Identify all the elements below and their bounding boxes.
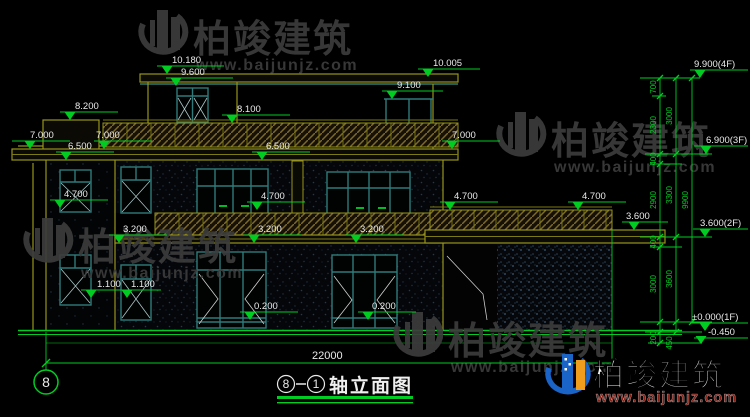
cad-elevation-screenshot: 柏竣建筑 www.baijunjz.com	[0, 0, 750, 417]
axis-number: 8	[42, 374, 50, 390]
chain-dim: 3000	[665, 107, 674, 125]
level-label: 1.100	[97, 279, 121, 290]
level-label: ±0.000(1F)	[692, 312, 738, 323]
level-label: 4.700	[261, 191, 285, 202]
watermark-url: www.baijunjz.com	[595, 390, 737, 406]
level-label: 4.700	[582, 191, 606, 202]
window-group-b-2f	[327, 172, 410, 215]
level-label: 6.900(3F)	[706, 135, 747, 146]
chain-dim: 400	[649, 152, 658, 166]
level-marker: 3.600	[622, 211, 668, 230]
chain-dim: 3300	[665, 186, 674, 204]
chain-dim: 3600	[665, 270, 674, 288]
floor-level-marker: -0.450	[694, 327, 748, 344]
level-label: 7.000	[452, 130, 476, 141]
chain-dim: 450	[665, 336, 674, 350]
level-label: 3.600(2F)	[700, 218, 741, 229]
level-label: 0.200	[372, 301, 396, 312]
level-label: 3.200	[360, 224, 384, 235]
chain-dim: 2300	[649, 116, 658, 134]
level-label: 7.000	[96, 130, 120, 141]
elevation-drawing-canvas: 柏竣建筑 www.baijunjz.com	[0, 0, 750, 417]
title-underline	[277, 396, 413, 399]
level-label: 9.600	[181, 67, 205, 78]
level-label: 8.100	[237, 104, 261, 115]
title-text: 轴立面图	[329, 374, 413, 397]
watermark-brand: 柏竣建筑	[593, 358, 725, 393]
tower-balcony-railing	[384, 99, 433, 123]
right-wing-gate-wall	[443, 244, 497, 330]
level-label: 7.000	[30, 130, 54, 141]
level-label: 8.200	[75, 101, 99, 112]
logo-building-icon	[562, 354, 573, 390]
level-label: 0.200	[254, 301, 278, 312]
brand-logo-color: 柏竣建筑 www.baijunjz.com	[548, 354, 737, 406]
chain-dim: 700	[649, 80, 658, 94]
chain-dim: 200	[649, 331, 658, 345]
level-label: 3.200	[258, 224, 282, 235]
level-label: 3.200	[123, 224, 147, 235]
title-axis-from: 8	[283, 377, 290, 391]
chain-dim: 9900	[681, 191, 690, 209]
level-label: 9.900(4F)	[694, 59, 735, 70]
chain-dim: 400	[649, 235, 658, 249]
dimension-chain: 700 2300 400 2900 400 3000 200 3000 3300…	[640, 59, 748, 350]
level-marker: 9.100	[382, 80, 443, 99]
level-label: 4.700	[454, 191, 478, 202]
right-wing-stone-wall	[497, 244, 612, 330]
floor-level-marker: 3.600(2F)	[693, 218, 748, 237]
level-label: 1.100	[131, 279, 155, 290]
level-label: 9.100	[397, 80, 421, 91]
level-label: 6.500	[266, 141, 290, 152]
chain-dim: 3000	[649, 275, 658, 293]
wing-railing	[430, 210, 612, 230]
level-label: 10.005	[433, 58, 462, 69]
chain-dim: 2900	[649, 191, 658, 209]
overall-width-label: 22000	[312, 350, 343, 362]
window-left-2f	[121, 167, 151, 213]
title-axis-to: 1	[313, 377, 320, 391]
level-label: -0.450	[708, 327, 735, 338]
level-label: 4.700	[64, 189, 88, 200]
penthouse-door	[177, 88, 208, 122]
level-label: 6.500	[68, 141, 92, 152]
level-label: 10.180	[172, 55, 201, 66]
level-marker: 8.200	[60, 101, 118, 120]
floor-level-marker: 9.900(4F)	[690, 59, 748, 78]
axis-bubble: 8	[34, 370, 58, 394]
level-label: 3.600	[626, 211, 650, 222]
window-group-2-1f	[332, 255, 397, 328]
drawing-title: 8 1 轴立面图	[277, 374, 413, 403]
